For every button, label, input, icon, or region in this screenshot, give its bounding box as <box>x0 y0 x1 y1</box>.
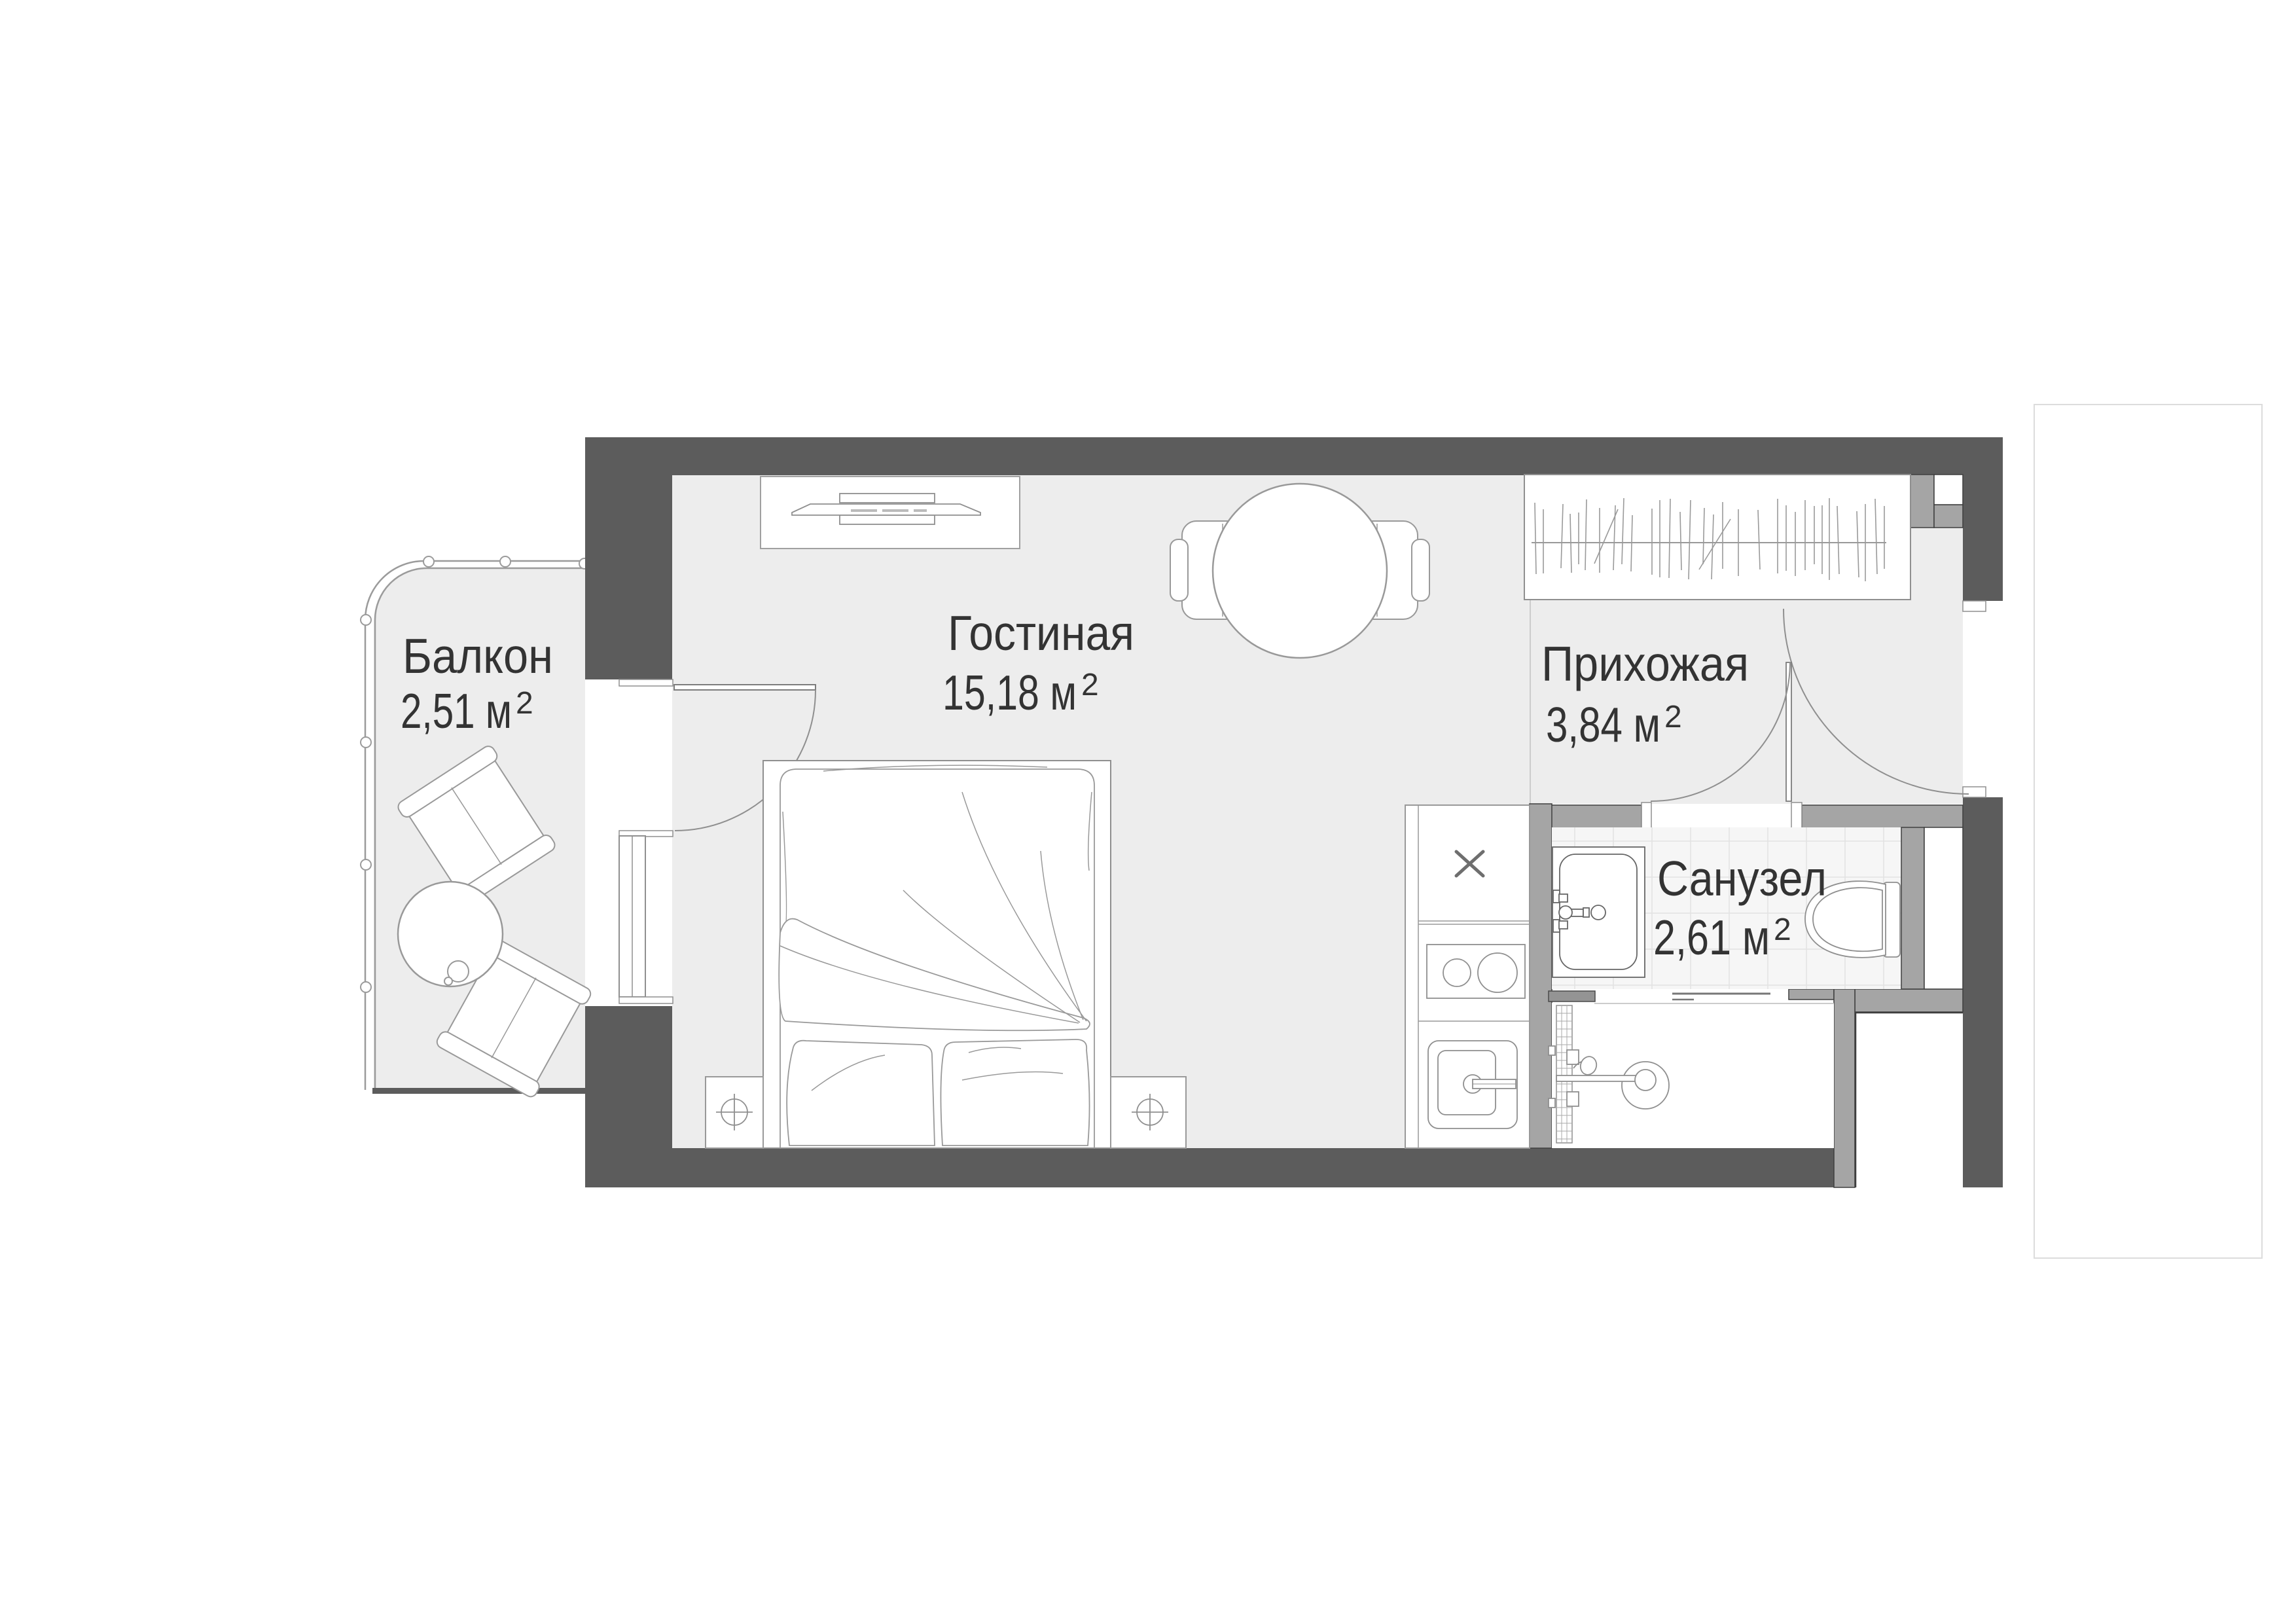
svg-text:15,18 м: 15,18 м <box>942 665 1077 720</box>
svg-text:2: 2 <box>1664 700 1682 734</box>
svg-text:Прихожая: Прихожая <box>1541 636 1749 691</box>
svg-text:Санузел: Санузел <box>1657 851 1827 906</box>
svg-text:2: 2 <box>516 686 533 721</box>
svg-text:2: 2 <box>1774 912 1791 947</box>
svg-text:2: 2 <box>1081 668 1099 702</box>
svg-text:Балкон: Балкон <box>403 628 553 683</box>
svg-text:3,84 м: 3,84 м <box>1546 697 1660 752</box>
svg-text:2,61 м: 2,61 м <box>1653 910 1770 965</box>
svg-text:Гостиная: Гостиная <box>948 605 1134 660</box>
svg-text:2,51 м: 2,51 м <box>401 683 512 738</box>
